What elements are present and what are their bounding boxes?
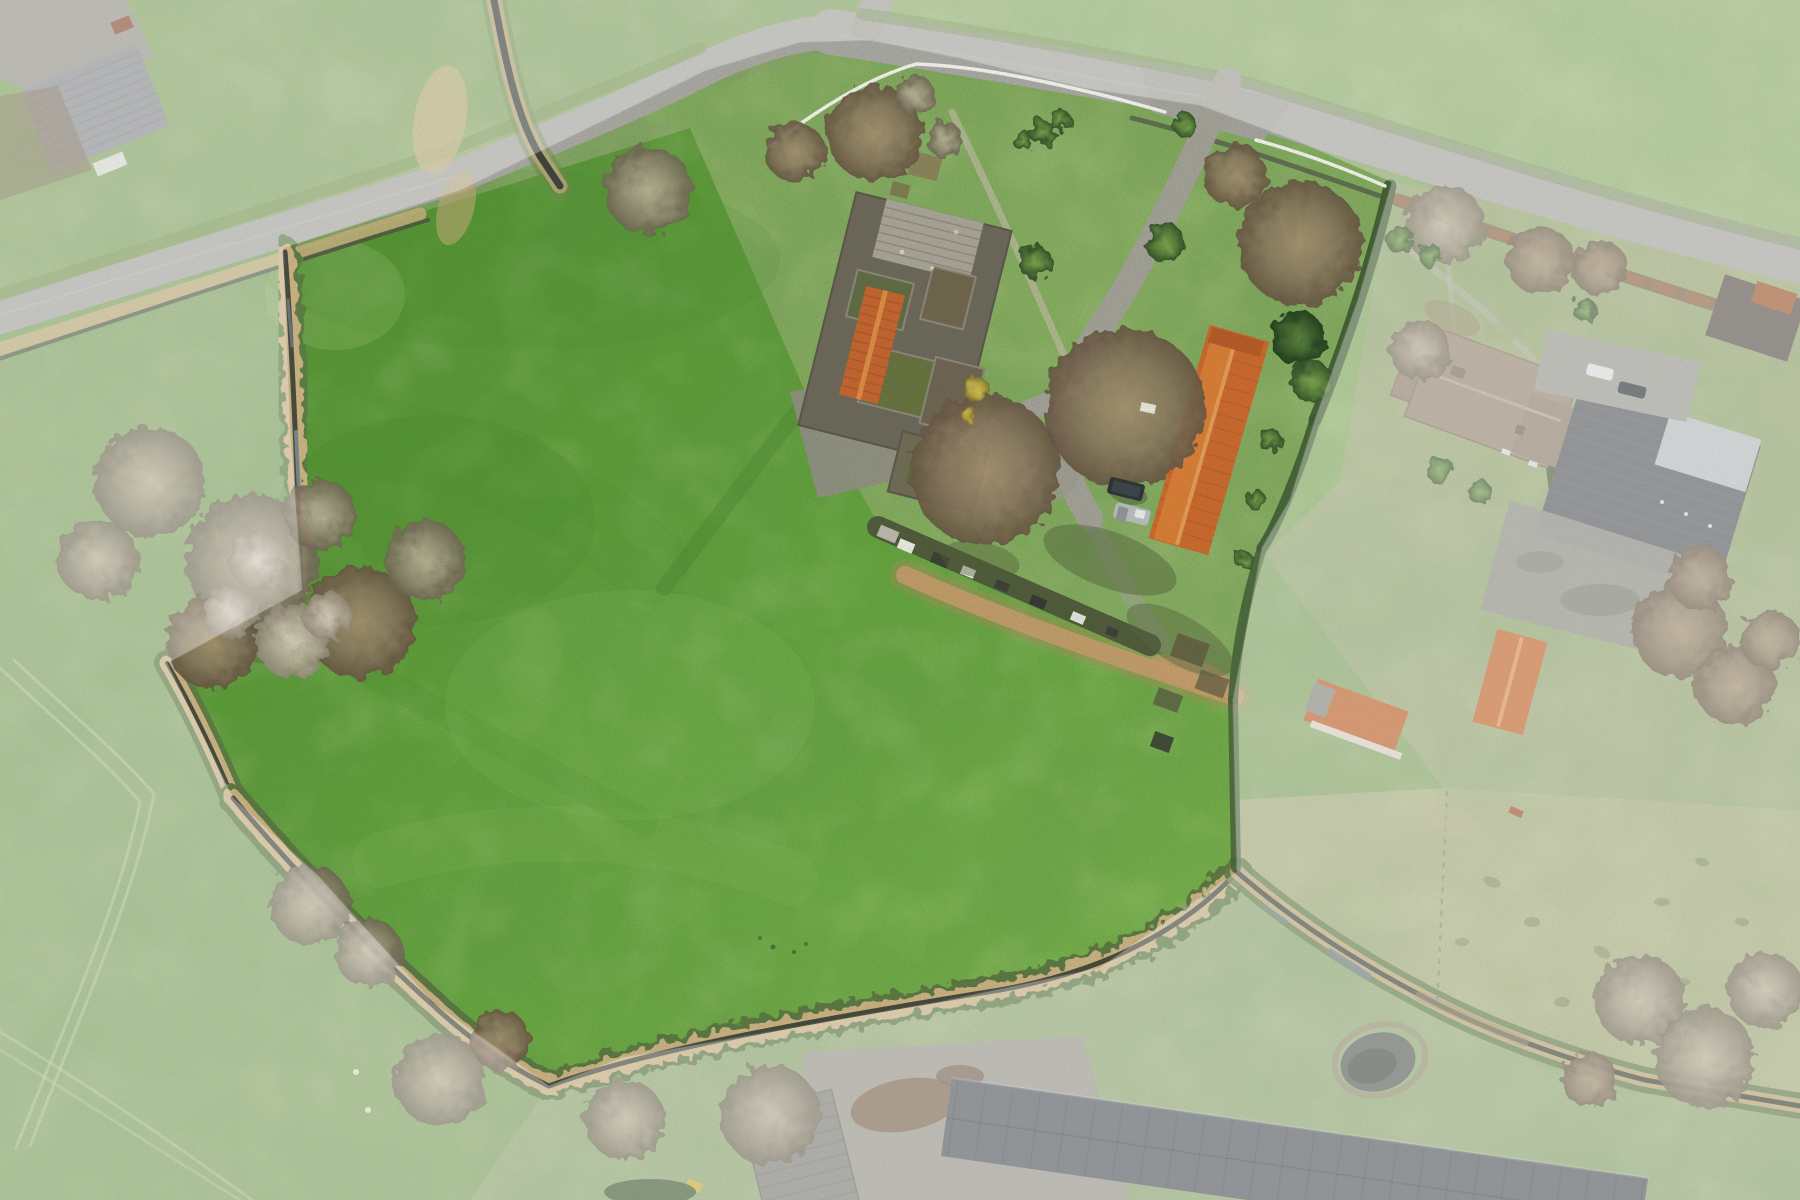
aerial-photo	[0, 0, 1800, 1200]
scene	[0, 0, 1800, 1200]
aerial-photo-svg	[0, 0, 1800, 1200]
